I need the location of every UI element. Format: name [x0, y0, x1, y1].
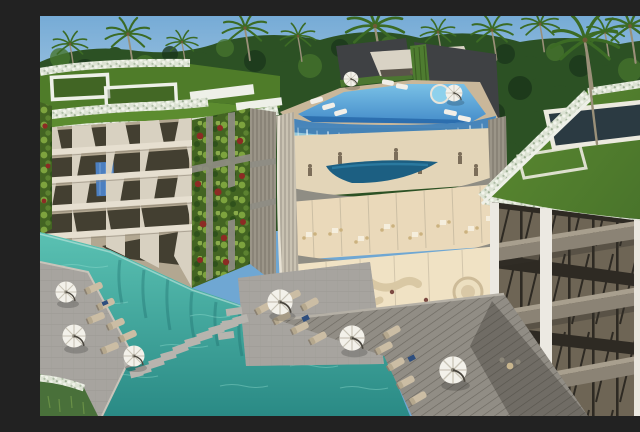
rendering-canvas [40, 16, 640, 416]
resort-aerial-rendering [40, 16, 640, 416]
slatted-tower [250, 108, 276, 284]
living-wall-left-edge [40, 102, 52, 235]
living-wall [192, 108, 250, 288]
